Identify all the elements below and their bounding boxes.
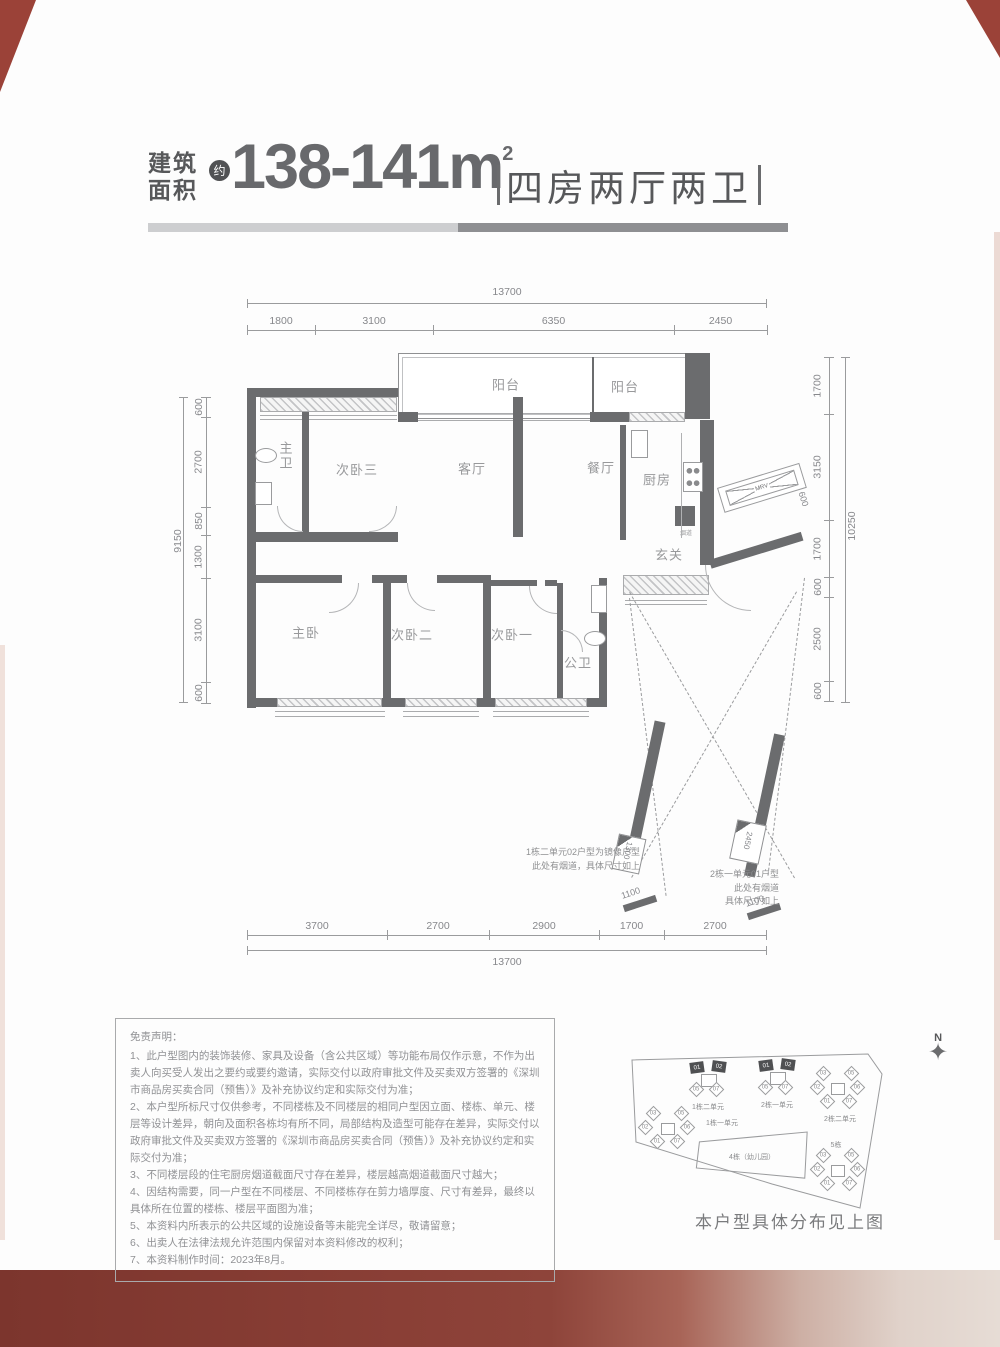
dim-seg: 1700 (806, 357, 830, 414)
dim-right-segments: 1700 3150 1700 600 2500 600 (806, 357, 830, 701)
dim-seg-label: 850 (193, 512, 205, 530)
window-hatch (629, 412, 685, 422)
disclaimer-item: 5、本资料内所表示的公共区域的设施设备等未能完全详尽，敬请留意； (130, 1218, 540, 1235)
dim-seg-label: 600 (812, 682, 824, 700)
dim-seg: 3100 (315, 315, 433, 331)
disclaimer-item: 7、本资料制作时间：2023年8月。 (130, 1252, 540, 1269)
mrv-duct: MRV (717, 463, 807, 513)
site-unit-dark: 01 (689, 1061, 704, 1074)
dim-seg-label: 600 (193, 684, 205, 702)
site-unit-label: 06 (854, 1085, 861, 1091)
site-unit-dark: 01 (758, 1059, 773, 1072)
dashed-line (767, 578, 805, 876)
layout-label-group: 四房两厅两卫 (497, 158, 761, 212)
door-arc (407, 583, 435, 611)
room-label-bedroom-3: 次卧三 (336, 460, 378, 479)
wall (685, 353, 710, 419)
dim-seg: 600 (191, 682, 207, 703)
balcony-divider (592, 357, 594, 415)
room-label-dining: 餐厅 (587, 458, 615, 477)
room-label-balcony-1: 阳台 (492, 375, 520, 394)
window-sill (493, 711, 589, 717)
site-unit-label: 05 (693, 1087, 700, 1093)
divider-bar-left (497, 165, 500, 205)
cluster-label: 1栋一单元 (706, 1118, 738, 1128)
disclaimer-item: 3、不同楼层段的住宅厨房烟道截面尺寸存在差异，楼层越高烟道截面尺寸越大； (130, 1167, 540, 1184)
dim-seg-label: 3150 (812, 455, 824, 478)
dim-seg: 600 (806, 681, 830, 701)
dim-seg: 1300 (191, 535, 207, 578)
site-unit-label: 06 (854, 1167, 861, 1173)
site-unit-label: 02 (814, 1167, 821, 1173)
wall (590, 412, 629, 422)
site-core (831, 1165, 845, 1177)
window-sill (403, 711, 479, 717)
site-plan: N ✦ 01 02 05 07 1栋二单元 01 02 05 07 2栋一单元 … (612, 1032, 964, 1217)
corner-decoration-top-right (966, 0, 1000, 58)
window-hatch (405, 698, 477, 707)
wall-diagonal (709, 532, 803, 569)
dim-left-total-line (183, 397, 184, 703)
header-underline-right (458, 223, 788, 232)
dim-seg: 3100 (191, 578, 207, 682)
room-label-bedroom-1: 次卧一 (491, 625, 533, 644)
wall (398, 412, 418, 422)
disclaimer-item: 2、本户型所标尺寸仅供参考，不同楼栋及不同楼层的相同户型因立面、楼栋、单元、楼层… (130, 1099, 540, 1167)
floorplan-drawing: 烟道 MRV 600 1300 1100 (247, 348, 767, 928)
area-prefix-line1: 建筑 (148, 150, 198, 177)
wall (383, 577, 391, 700)
room-label-bedroom-2: 次卧二 (391, 625, 433, 644)
mirror-note: 1栋二单元02户型为镜像户型 此处有烟道，具体尺寸如上 (475, 846, 640, 873)
site-unit-label: 07 (782, 1085, 789, 1091)
door-arc (329, 583, 359, 613)
area-number: 138-141m (231, 132, 502, 202)
wall (256, 575, 342, 583)
dim-right-total: 10250 (846, 496, 858, 556)
room-label-master-bath: 主卫 (276, 441, 295, 471)
site-unit-label: 01 (824, 1099, 831, 1105)
site-unit-label: 01 (654, 1139, 661, 1145)
layout-label: 四房两厅两卫 (506, 158, 752, 212)
disclaimer-title: 免责声明： (130, 1029, 540, 1046)
wall (620, 425, 626, 540)
dim-top-total: 13700 (247, 286, 767, 298)
room-label-kitchen: 厨房 (643, 470, 671, 489)
wall (247, 388, 256, 708)
dim-seg-label: 1700 (812, 374, 824, 397)
cluster-label: 2栋一单元 (761, 1100, 793, 1110)
dim-seg: 6350 (433, 315, 674, 331)
balcony-slider-door (418, 413, 590, 421)
cluster-label: 5栋 (831, 1140, 842, 1150)
header-underline-left (148, 223, 458, 232)
site-unit-label: 02 (814, 1085, 821, 1091)
site-unit-label: 01 (824, 1181, 831, 1187)
dim-seg: 1700 (806, 520, 830, 577)
site-unit-label: 07 (713, 1087, 720, 1093)
flue-note-line2: 此处有烟道 (685, 882, 779, 896)
area-prefix-label: 建筑 面积 (148, 150, 198, 204)
room-label-public-bath: 公卫 (564, 653, 592, 672)
window-sill (275, 711, 385, 717)
stove-icon (683, 462, 703, 492)
cluster-label: 1栋二单元 (692, 1102, 724, 1112)
disclaimer-box: 免责声明： 1、此户型图内的装饰装修、家具及设备（含公共区域）等功能布局仅作示意… (115, 1018, 555, 1282)
cluster-label: 2栋二单元 (824, 1114, 856, 1124)
balcony-inner-line (402, 357, 706, 415)
flue-note: 2栋一单元01户型 此处有烟道 具体尺寸如上 (685, 868, 779, 909)
disclaimer-item: 4、因结构需要，同一户型在不同楼层、不同楼栋存在剪力墙厚度、尺寸有差异，最终以具… (130, 1184, 540, 1218)
mirror-note-line2: 此处有烟道，具体尺寸如上 (475, 860, 640, 874)
dim-seg-label: 2700 (193, 450, 205, 473)
disclaimer-item: 6、出卖人在法律法规允许范围内保留对本资料修改的权利； (130, 1235, 540, 1252)
site-unit-label: 05 (848, 1153, 855, 1159)
edge-decoration-right (994, 232, 1000, 1240)
dim-bottom-total-line (247, 950, 767, 951)
compass-star-icon: ✦ (928, 1044, 948, 1062)
dim-flue-left-offset: 1100 (620, 885, 642, 900)
site-unit-label: 07 (846, 1181, 853, 1187)
door-arc (369, 506, 397, 532)
wall (302, 412, 309, 537)
counter-line (681, 433, 682, 538)
site-unit-label: 05 (848, 1071, 855, 1077)
dim-top-segments: 1800 3100 6350 2450 (247, 315, 767, 331)
site-unit-label: 03 (650, 1111, 657, 1117)
corner-decoration-top-left (0, 0, 36, 92)
site-unit-label: 05 (762, 1085, 769, 1091)
dim-seg: 1800 (247, 315, 315, 331)
dim-seg-label: 1300 (193, 545, 205, 568)
dim-left-segments: 600 2700 850 1300 3100 600 (191, 397, 207, 703)
site-unit-label: 06 (684, 1125, 691, 1131)
approx-badge: 约 (209, 160, 230, 181)
north-arrow: N ✦ (928, 1032, 948, 1062)
window-hatch (260, 397, 397, 412)
disclaimer-item: 1、此户型图内的装饰装修、家具及设备（含公共区域）等功能布局仅作示意，不作为出卖… (130, 1048, 540, 1099)
mirror-note-line1: 1栋二单元02户型为镜像户型 (475, 846, 640, 860)
wall (513, 397, 523, 537)
dim-top-total-line (247, 303, 767, 304)
site-core (831, 1083, 845, 1095)
corridor-hatch (623, 575, 709, 595)
cluster-label: 4栋（幼儿园） (729, 1152, 775, 1162)
edge-decoration-left (0, 645, 5, 1240)
entry-door-arc (705, 565, 751, 611)
dim-seg: 600 (191, 397, 207, 417)
wall (256, 532, 398, 542)
wall (483, 575, 491, 700)
door-arc (277, 506, 303, 532)
dim-seg-label: 1700 (812, 537, 824, 560)
divider-bar-right (758, 165, 761, 205)
dim-seg: 2500 (806, 597, 830, 681)
kitchen-flue (675, 506, 695, 526)
site-unit-label: 03 (820, 1153, 827, 1159)
site-unit-label: 05 (678, 1111, 685, 1117)
window-hatch (495, 698, 587, 707)
site-unit-dark: 02 (780, 1058, 795, 1071)
site-plan-caption: 本户型具体分布见上图 (640, 1208, 940, 1233)
flyer-page: 建筑 面积 约 138-141m2 四房两厅两卫 13700 1800 3100… (0, 0, 1000, 1347)
sink-icon (591, 585, 607, 613)
window-sill (260, 415, 397, 420)
wall (700, 420, 714, 565)
site-unit-label: 02 (642, 1125, 649, 1131)
dim-seg-label: 2500 (812, 627, 824, 650)
window-hatch (277, 698, 382, 707)
dim-seg-label: 3100 (193, 618, 205, 641)
room-label-foyer: 玄关 (655, 545, 683, 564)
wall (437, 575, 483, 583)
site-unit-label: 07 (846, 1099, 853, 1105)
dim-seg: 850 (191, 507, 207, 535)
dim-seg-label: 600 (193, 398, 205, 416)
flue-note-line1: 2栋一单元01户型 (685, 868, 779, 882)
flue-note-line3: 具体尺寸如上 (685, 895, 779, 909)
door-arc (529, 586, 557, 614)
dim-seg: 600 (806, 577, 830, 597)
room-label-master-bedroom: 主卧 (292, 623, 320, 642)
wall (247, 388, 398, 397)
room-label-living: 客厅 (458, 459, 486, 478)
door-arc (561, 630, 583, 652)
area-prefix-line2: 面积 (148, 177, 198, 204)
toilet-icon (255, 448, 277, 463)
site-unit-label: 07 (674, 1139, 681, 1145)
kitchen-sink-icon (631, 430, 648, 458)
site-unit-dark: 02 (711, 1060, 726, 1073)
sink-icon (255, 482, 272, 505)
toilet-icon (584, 631, 606, 646)
site-unit-label: 03 (820, 1071, 827, 1077)
room-label-balcony-2: 阳台 (611, 377, 639, 396)
dim-seg: 2450 (674, 315, 767, 331)
dim-seg-label: 600 (812, 578, 824, 596)
dim-bottom-total: 13700 (247, 956, 767, 968)
dim-seg: 2700 (191, 417, 207, 507)
site-core (661, 1123, 675, 1135)
area-value: 138-141m2 (231, 136, 513, 199)
